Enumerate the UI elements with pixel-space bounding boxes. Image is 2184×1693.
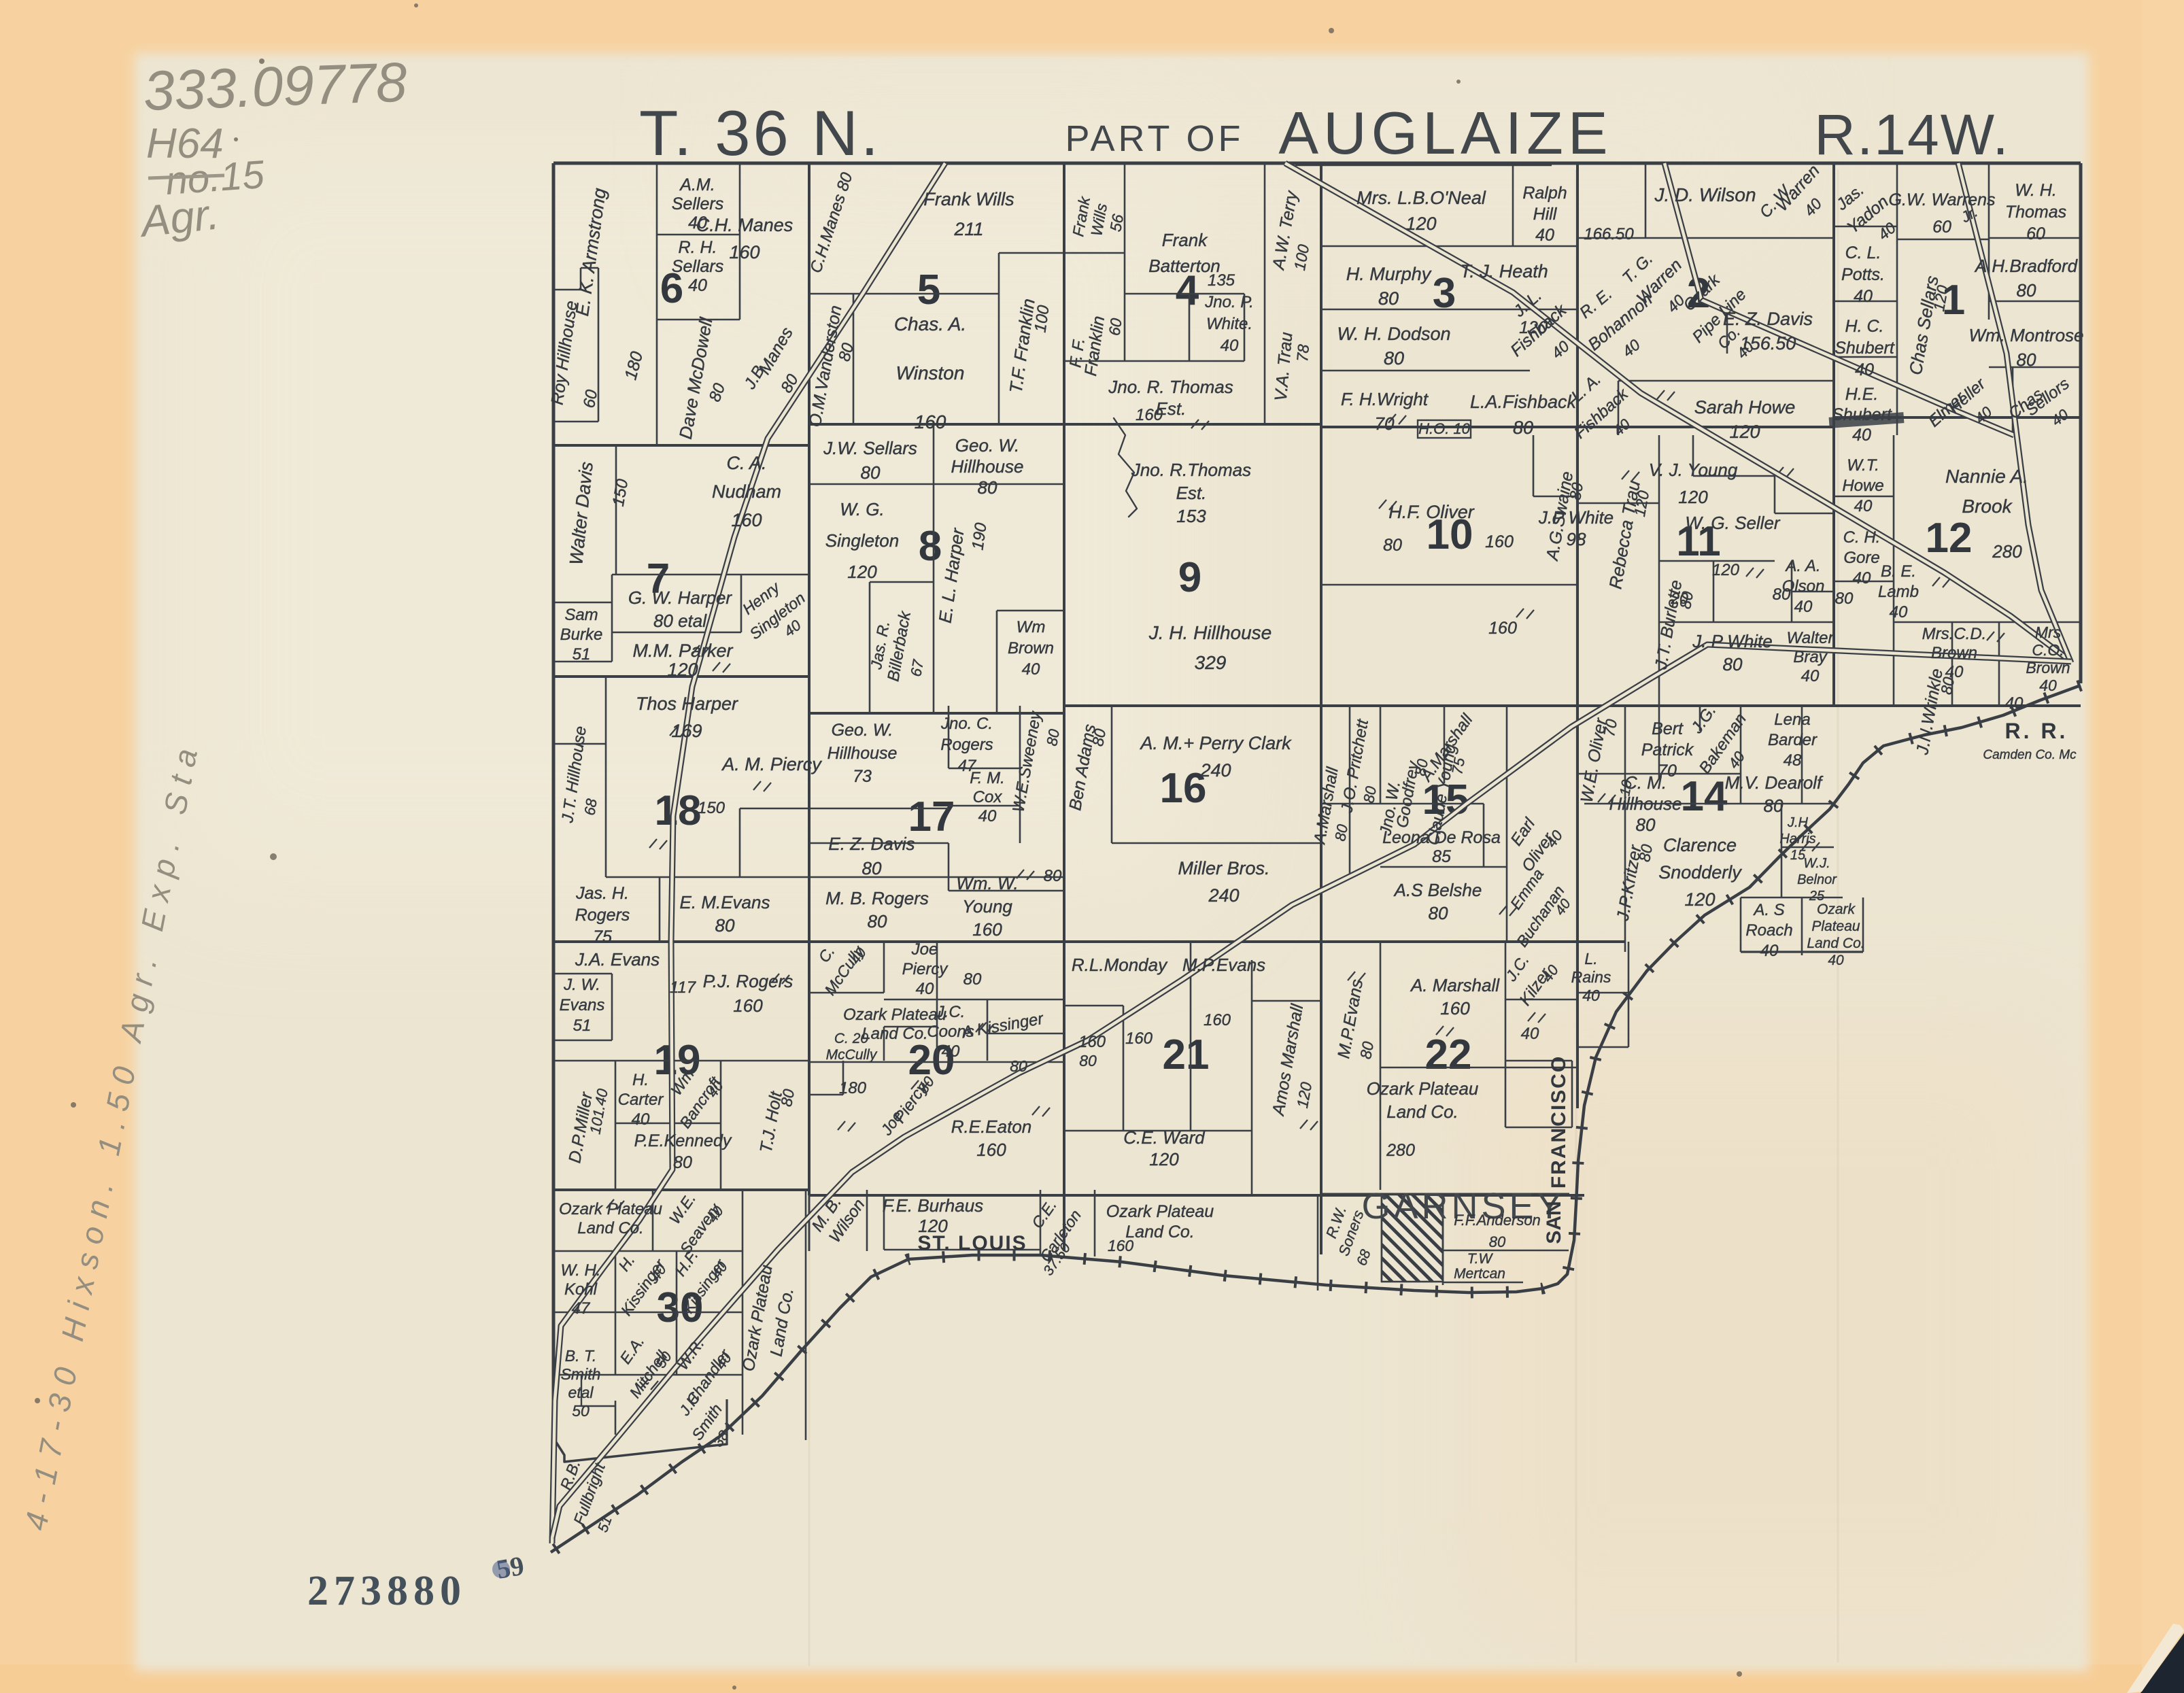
- svg-text:80: 80: [1044, 867, 1062, 885]
- svg-text:80: 80: [1010, 1057, 1027, 1075]
- svg-text:16: 16: [1160, 765, 1207, 812]
- svg-text:12: 12: [1926, 515, 1973, 562]
- svg-text:180: 180: [839, 1079, 867, 1097]
- svg-text:A. M. Piercy: A. M. Piercy: [721, 754, 822, 774]
- svg-text:80: 80: [1773, 585, 1791, 604]
- svg-text:17: 17: [908, 793, 955, 840]
- svg-text:80: 80: [1079, 1052, 1097, 1070]
- svg-text:10: 10: [1617, 779, 1635, 797]
- svg-text:80: 80: [1357, 1040, 1377, 1061]
- svg-text:40: 40: [2005, 694, 2024, 713]
- svg-text:14: 14: [1681, 773, 1728, 820]
- svg-text:80: 80: [1089, 728, 1109, 748]
- svg-text:60: 60: [580, 388, 601, 410]
- svg-text:T. 36 N.: T. 36 N.: [639, 97, 881, 169]
- svg-text:280: 280: [1386, 1141, 1415, 1160]
- svg-text:AUGLAIZE: AUGLAIZE: [1278, 99, 1612, 167]
- svg-text:R. R.: R. R.: [2005, 719, 2068, 743]
- svg-text:120: 120: [1712, 561, 1740, 579]
- svg-text:M.P.Evans: M.P.Evans: [1182, 955, 1265, 975]
- svg-text:70: 70: [1600, 718, 1620, 738]
- svg-text:9: 9: [1178, 554, 1201, 601]
- svg-text:J. D. Wilson: J. D. Wilson: [1654, 184, 1756, 205]
- svg-text:160: 160: [1125, 1029, 1153, 1048]
- svg-text:21: 21: [1163, 1031, 1210, 1078]
- svg-text:80: 80: [1566, 481, 1586, 502]
- svg-text:22: 22: [1425, 1031, 1472, 1078]
- svg-text:67: 67: [907, 658, 927, 678]
- svg-text:100: 100: [1031, 304, 1053, 334]
- svg-text:166.50: 166.50: [1584, 225, 1634, 243]
- svg-text:333.09778: 333.09778: [142, 52, 408, 122]
- svg-text:150: 150: [698, 799, 726, 817]
- svg-text:135: 135: [1208, 271, 1235, 290]
- svg-text:FRANCISCO: FRANCISCO: [1548, 1055, 1570, 1188]
- svg-text:160: 160: [1204, 1011, 1231, 1029]
- svg-text:40: 40: [1521, 1025, 1539, 1043]
- svg-text:80: 80: [1635, 843, 1656, 863]
- svg-text:80: 80: [1383, 536, 1402, 555]
- svg-text:T. J. Heath: T. J. Heath: [1460, 261, 1548, 281]
- svg-text:273880: 273880: [307, 1568, 466, 1614]
- svg-text:H.F. Oliver: H.F. Oliver: [1388, 502, 1475, 522]
- svg-text:80: 80: [1043, 728, 1063, 747]
- svg-text:H.O. 10: H.O. 10: [1418, 420, 1471, 437]
- svg-text:117: 117: [670, 978, 697, 997]
- svg-text:ST. LOUIS: ST. LOUIS: [917, 1232, 1027, 1254]
- svg-text:280: 280: [1992, 541, 2022, 562]
- svg-text:Camden Co. Mc: Camden Co. Mc: [1983, 748, 2077, 762]
- svg-text:80: 80: [963, 970, 982, 989]
- svg-text:80: 80: [1331, 823, 1351, 842]
- svg-text:Agr.: Agr.: [136, 189, 222, 246]
- svg-text:190: 190: [968, 521, 990, 551]
- svg-text:W. G. Seller: W. G. Seller: [1685, 513, 1781, 533]
- svg-text:160: 160: [1136, 406, 1163, 424]
- svg-text:R.L.Monday: R.L.Monday: [1072, 955, 1168, 975]
- svg-text:160: 160: [1488, 619, 1517, 638]
- svg-text:68: 68: [581, 797, 600, 816]
- svg-text:SAN: SAN: [1543, 1201, 1565, 1244]
- svg-text:80: 80: [1360, 785, 1380, 804]
- svg-text:80: 80: [777, 1088, 798, 1108]
- svg-text:R.14W.: R.14W.: [1814, 103, 2009, 167]
- svg-text:160: 160: [1485, 532, 1514, 551]
- svg-text:160: 160: [1078, 1033, 1106, 1051]
- svg-text:80: 80: [1676, 590, 1696, 611]
- svg-text:78: 78: [1293, 343, 1312, 362]
- svg-text:8: 8: [919, 523, 942, 570]
- svg-text:160: 160: [1108, 1237, 1134, 1254]
- svg-text:75: 75: [1448, 756, 1468, 776]
- svg-text:60: 60: [1105, 317, 1125, 337]
- svg-text:5: 5: [917, 267, 940, 313]
- svg-text:PART OF: PART OF: [1065, 118, 1244, 159]
- svg-text:80: 80: [1937, 676, 1958, 696]
- svg-text:J.A. Evans: J.A. Evans: [575, 949, 660, 970]
- svg-text:80: 80: [1835, 589, 1854, 608]
